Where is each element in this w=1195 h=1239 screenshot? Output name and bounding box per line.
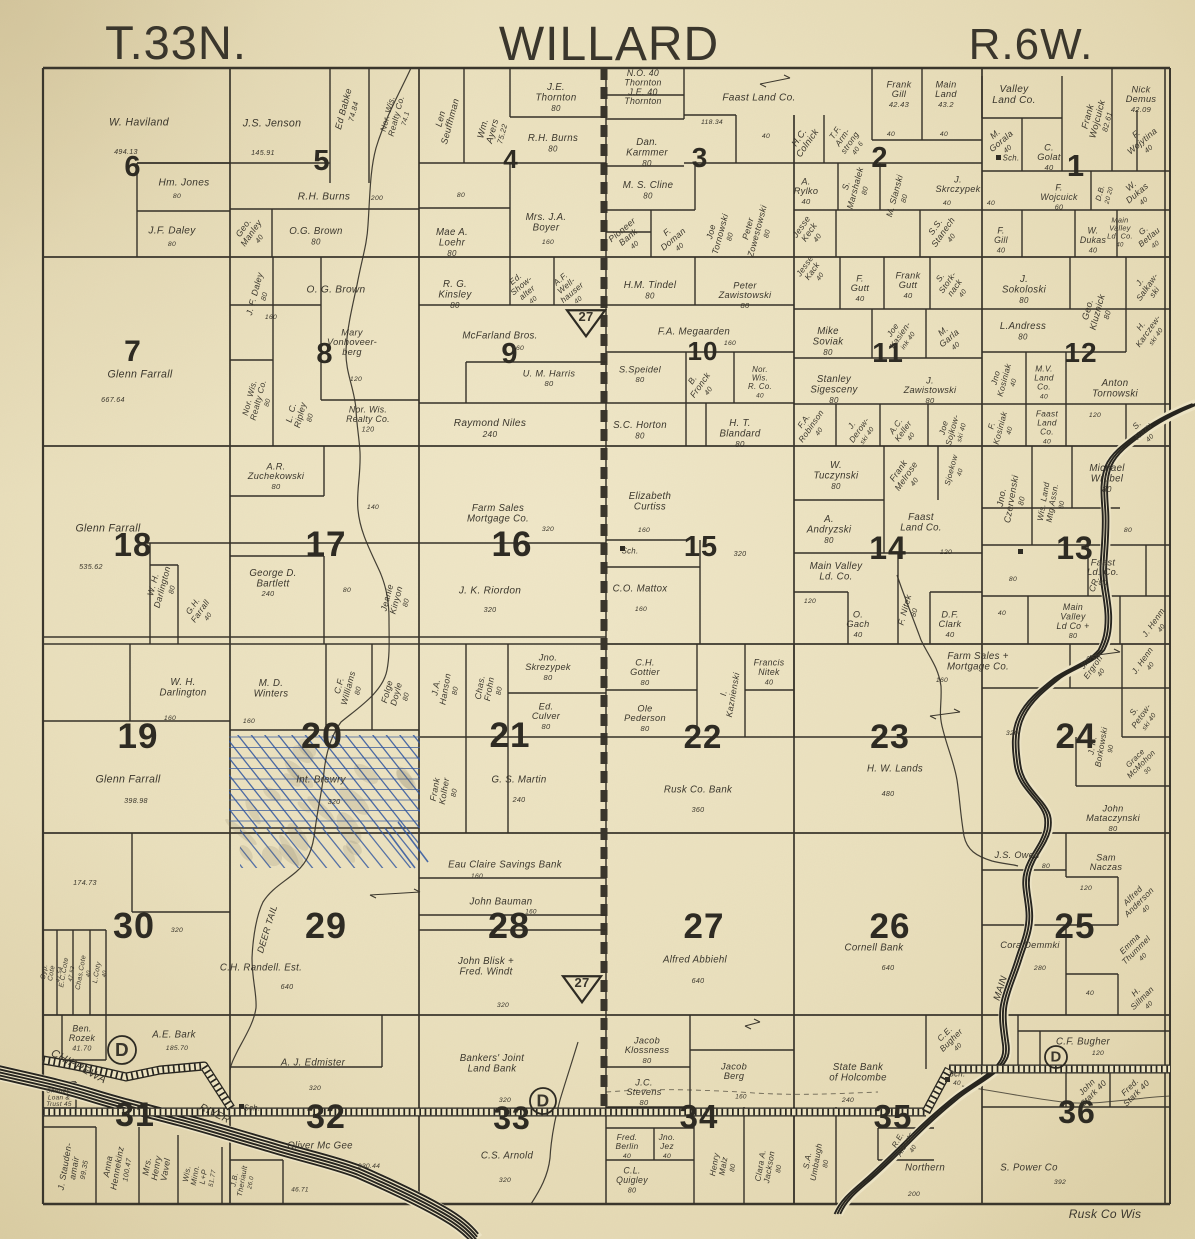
svg-text:Gill: Gill xyxy=(994,235,1009,245)
svg-text:Co.: Co. xyxy=(1037,382,1051,391)
svg-text:40: 40 xyxy=(997,246,1006,254)
svg-text:26: 26 xyxy=(870,907,911,946)
svg-text:Int. Brewry: Int. Brewry xyxy=(296,774,346,785)
svg-text:35: 35 xyxy=(874,1098,913,1135)
svg-text:360: 360 xyxy=(692,806,705,814)
svg-text:J.S. Jenson: J.S. Jenson xyxy=(242,118,302,130)
svg-text:29: 29 xyxy=(305,905,347,946)
svg-text:160: 160 xyxy=(164,715,176,722)
svg-text:80: 80 xyxy=(640,1098,649,1107)
svg-text:Mortgage Co.: Mortgage Co. xyxy=(947,662,1009,673)
svg-text:7: 7 xyxy=(124,335,142,368)
svg-text:80: 80 xyxy=(1102,485,1112,494)
svg-text:Rusk Co. Bank: Rusk Co. Bank xyxy=(664,784,733,795)
svg-text:Gutt: Gutt xyxy=(899,280,918,290)
svg-text:F.: F. xyxy=(856,273,864,283)
svg-text:Gill: Gill xyxy=(892,89,907,99)
svg-text:Jez: Jez xyxy=(659,1142,674,1151)
svg-text:80: 80 xyxy=(343,587,351,594)
svg-text:Wrubel: Wrubel xyxy=(1091,473,1124,484)
svg-text:80: 80 xyxy=(272,482,281,491)
svg-text:J.F. Daley: J.F. Daley xyxy=(147,226,196,237)
svg-text:Sch.: Sch. xyxy=(622,547,639,556)
svg-text:M.V.: M.V. xyxy=(1035,364,1053,373)
svg-text:160: 160 xyxy=(512,345,524,352)
svg-text:Faast: Faast xyxy=(908,512,935,523)
svg-text:Rusk Co Wis: Rusk Co Wis xyxy=(1069,1207,1142,1221)
svg-text:80: 80 xyxy=(823,348,833,357)
svg-text:40: 40 xyxy=(1043,438,1051,445)
svg-text:Karmmer: Karmmer xyxy=(626,147,668,158)
svg-text:Cornell Bank: Cornell Bank xyxy=(845,942,905,953)
svg-text:80: 80 xyxy=(822,1159,830,1168)
svg-text:160: 160 xyxy=(542,239,554,246)
svg-text:S.C. Horton: S.C. Horton xyxy=(613,420,667,431)
svg-text:of Holcombe: of Holcombe xyxy=(829,1073,887,1084)
svg-text:Vonhoveer-: Vonhoveer- xyxy=(327,337,377,347)
svg-text:Gach: Gach xyxy=(846,619,869,629)
svg-text:320: 320 xyxy=(1006,730,1018,737)
svg-text:D: D xyxy=(537,1090,550,1110)
svg-text:Frank: Frank xyxy=(887,79,912,89)
svg-text:Soviak: Soviak xyxy=(813,336,845,347)
svg-text:392: 392 xyxy=(1054,1179,1066,1186)
svg-text:80: 80 xyxy=(829,396,839,405)
svg-text:120: 120 xyxy=(1080,885,1092,892)
svg-text:R. G.: R. G. xyxy=(443,279,467,290)
svg-text:D: D xyxy=(1050,1050,1061,1066)
svg-text:80: 80 xyxy=(643,1056,652,1065)
svg-text:34: 34 xyxy=(680,1098,719,1135)
svg-text:Ed.: Ed. xyxy=(539,701,554,711)
svg-text:Rozek: Rozek xyxy=(69,1033,96,1043)
svg-text:Faast: Faast xyxy=(1036,409,1059,418)
svg-text:Darlington: Darlington xyxy=(159,688,206,699)
svg-text:80: 80 xyxy=(1018,333,1028,342)
svg-text:240: 240 xyxy=(841,1097,854,1104)
svg-text:Hm. Jones: Hm. Jones xyxy=(158,178,209,189)
svg-text:Mae A.: Mae A. xyxy=(436,227,468,238)
svg-text:46.71: 46.71 xyxy=(291,1187,309,1194)
svg-text:C.F. Bugher: C.F. Bugher xyxy=(1056,1036,1111,1047)
svg-text:16: 16 xyxy=(492,525,533,564)
svg-text:D.F.: D.F. xyxy=(941,609,958,619)
svg-text:Nick: Nick xyxy=(1131,84,1150,94)
svg-text:12: 12 xyxy=(1064,337,1097,368)
svg-text:F.A. Megaarden: F.A. Megaarden xyxy=(658,326,730,337)
svg-text:Mrs. J.A.: Mrs. J.A. xyxy=(526,212,567,223)
svg-text:M. D.: M. D. xyxy=(259,678,284,689)
svg-text:Pederson: Pederson xyxy=(624,713,666,723)
svg-text:Sheboy.: Sheboy. xyxy=(46,1087,71,1094)
svg-text:Frank: Frank xyxy=(896,270,921,280)
svg-text:J.: J. xyxy=(925,375,934,385)
svg-text:C.: C. xyxy=(1044,142,1054,152)
svg-text:80: 80 xyxy=(1109,824,1118,833)
svg-text:80: 80 xyxy=(1069,632,1078,640)
svg-text:27: 27 xyxy=(578,309,593,324)
svg-text:Faast Land Co.: Faast Land Co. xyxy=(722,93,795,104)
svg-text:80: 80 xyxy=(450,301,460,310)
svg-text:320: 320 xyxy=(499,1097,511,1104)
svg-text:80: 80 xyxy=(451,686,460,696)
svg-text:240: 240 xyxy=(512,796,526,804)
svg-text:40: 40 xyxy=(1045,163,1054,172)
svg-text:640: 640 xyxy=(281,983,294,991)
svg-text:42.09: 42.09 xyxy=(1131,105,1152,114)
svg-text:Farm Sales +: Farm Sales + xyxy=(947,651,1008,662)
svg-text:Mike: Mike xyxy=(817,326,839,337)
svg-text:Eau Claire Savings Bank: Eau Claire Savings Bank xyxy=(448,859,563,870)
svg-text:160: 160 xyxy=(638,527,650,534)
svg-text:240: 240 xyxy=(261,590,275,598)
svg-text:M. S. Cline: M. S. Cline xyxy=(623,180,674,191)
svg-text:40: 40 xyxy=(1086,990,1094,997)
svg-text:Berg: Berg xyxy=(724,1071,745,1081)
svg-text:A.E. Bark: A.E. Bark xyxy=(151,1029,196,1040)
svg-text:80: 80 xyxy=(635,432,645,441)
svg-text:Thornton: Thornton xyxy=(624,96,661,106)
svg-text:Skrczypek: Skrczypek xyxy=(935,184,980,194)
svg-text:Dan.: Dan. xyxy=(636,137,658,148)
svg-text:40: 40 xyxy=(940,131,948,138)
svg-text:Mortgage Co.: Mortgage Co. xyxy=(467,514,529,525)
svg-text:G. S. Martin: G. S. Martin xyxy=(491,774,546,785)
svg-text:Stanley: Stanley xyxy=(817,374,852,385)
svg-text:H. T.: H. T. xyxy=(729,418,751,429)
svg-text:Blandard: Blandard xyxy=(719,428,760,439)
svg-text:Land Bank: Land Bank xyxy=(468,1064,518,1075)
svg-text:H.M. Tindel: H.M. Tindel xyxy=(624,280,677,291)
svg-text:25: 25 xyxy=(1055,907,1096,946)
svg-text:S. Power Co: S. Power Co xyxy=(1000,1162,1058,1173)
svg-text:O. G. Brown: O. G. Brown xyxy=(307,285,366,296)
svg-text:320: 320 xyxy=(171,927,183,934)
svg-text:berg: berg xyxy=(342,347,362,357)
svg-text:Rylko: Rylko xyxy=(794,186,818,196)
svg-text:Ld. Co.: Ld. Co. xyxy=(1107,232,1133,241)
svg-text:80: 80 xyxy=(642,159,652,168)
svg-text:A. J. Edmister: A. J. Edmister xyxy=(280,1057,346,1068)
svg-text:23: 23 xyxy=(870,718,910,756)
svg-text:Bartlett: Bartlett xyxy=(257,579,291,590)
svg-text:27: 27 xyxy=(684,907,725,946)
svg-text:22: 22 xyxy=(684,718,723,755)
svg-text:200: 200 xyxy=(907,1191,920,1198)
svg-text:3: 3 xyxy=(692,142,709,173)
svg-text:Ole: Ole xyxy=(637,703,652,713)
svg-text:120: 120 xyxy=(804,598,816,605)
svg-text:320: 320 xyxy=(328,798,341,806)
svg-text:80: 80 xyxy=(495,686,504,696)
svg-text:J.E.: J.E. xyxy=(546,82,565,93)
svg-text:Glenn Farrall: Glenn Farrall xyxy=(75,523,140,535)
svg-text:Dukas: Dukas xyxy=(1080,235,1107,245)
svg-text:80: 80 xyxy=(542,722,551,731)
svg-text:185.70: 185.70 xyxy=(166,1045,189,1052)
svg-text:George D.: George D. xyxy=(249,568,296,579)
svg-text:160: 160 xyxy=(735,1094,747,1101)
svg-text:40: 40 xyxy=(1040,393,1048,400)
svg-text:Bankers' Joint: Bankers' Joint xyxy=(460,1053,526,1064)
svg-text:Gottier: Gottier xyxy=(630,667,660,677)
svg-text:480: 480 xyxy=(882,790,895,798)
svg-text:Glenn Farrall: Glenn Farrall xyxy=(95,774,160,786)
svg-text:80: 80 xyxy=(1058,500,1066,509)
svg-text:A.: A. xyxy=(800,176,810,186)
svg-text:Main: Main xyxy=(935,79,956,89)
svg-text:Alfred Abbiehl: Alfred Abbiehl xyxy=(662,954,728,965)
svg-text:160: 160 xyxy=(243,718,255,725)
svg-text:Andryzski: Andryzski xyxy=(806,524,852,535)
svg-text:80: 80 xyxy=(831,482,841,491)
svg-text:R.H. Burns: R.H. Burns xyxy=(298,192,350,203)
svg-text:A.R.: A.R. xyxy=(265,461,285,471)
svg-text:Klossness: Klossness xyxy=(625,1045,670,1055)
svg-text:Land Co.: Land Co. xyxy=(900,523,942,534)
svg-text:Peter: Peter xyxy=(733,280,757,290)
svg-text:120: 120 xyxy=(1092,1050,1104,1057)
svg-text:200: 200 xyxy=(370,195,383,202)
svg-text:C.H.: C.H. xyxy=(635,657,655,667)
svg-text:40: 40 xyxy=(998,610,1006,617)
svg-text:Golat: Golat xyxy=(1037,152,1061,162)
svg-text:40: 40 xyxy=(953,1080,961,1087)
svg-text:Ld. Co.: Ld. Co. xyxy=(819,572,852,583)
svg-text:80: 80 xyxy=(1124,527,1132,534)
svg-text:80: 80 xyxy=(1009,576,1017,583)
svg-text:Elizabeth: Elizabeth xyxy=(629,491,671,502)
svg-text:1: 1 xyxy=(1067,148,1085,183)
svg-text:Sch.: Sch. xyxy=(949,1070,966,1079)
svg-text:C.H. Randell. Est.: C.H. Randell. Est. xyxy=(220,962,302,973)
svg-text:Land: Land xyxy=(935,89,957,99)
svg-text:C.O. Mattox: C.O. Mattox xyxy=(613,583,669,594)
svg-text:667.64: 667.64 xyxy=(101,396,125,404)
svg-text:Jno.: Jno. xyxy=(538,652,558,662)
svg-text:S.Speidel: S.Speidel xyxy=(619,364,662,374)
svg-text:State Bank: State Bank xyxy=(833,1062,884,1073)
svg-text:Nitek: Nitek xyxy=(758,667,780,677)
svg-text:Berlin: Berlin xyxy=(616,1142,639,1151)
svg-text:40: 40 xyxy=(1116,242,1124,248)
svg-text:320: 320 xyxy=(497,1002,509,1009)
svg-text:40: 40 xyxy=(854,630,863,639)
svg-text:2: 2 xyxy=(871,142,888,174)
svg-text:D: D xyxy=(115,1040,129,1061)
svg-text:Realty Co.: Realty Co. xyxy=(346,414,390,424)
svg-text:120: 120 xyxy=(362,425,375,433)
svg-text:Sch.: Sch. xyxy=(1003,154,1020,163)
svg-text:640: 640 xyxy=(692,977,705,985)
svg-text:Skrezypek: Skrezypek xyxy=(525,662,571,672)
svg-text:Main Valley: Main Valley xyxy=(810,561,864,572)
svg-text:15: 15 xyxy=(684,531,718,563)
svg-text:Wojcuick: Wojcuick xyxy=(1040,192,1078,202)
svg-text:80: 80 xyxy=(457,192,465,199)
svg-text:240: 240 xyxy=(482,429,498,439)
svg-text:W. Haviland: W. Haviland xyxy=(109,117,170,129)
svg-text:Valley: Valley xyxy=(1000,84,1030,95)
svg-text:80: 80 xyxy=(645,292,655,301)
svg-text:Cora Demmki: Cora Demmki xyxy=(1000,940,1060,950)
svg-text:90: 90 xyxy=(1107,744,1115,753)
svg-text:W.: W. xyxy=(830,460,842,471)
svg-text:Jno.: Jno. xyxy=(658,1133,676,1142)
svg-text:160: 160 xyxy=(635,606,647,613)
svg-text:H. W. Lands: H. W. Lands xyxy=(867,763,923,774)
svg-text:42.43: 42.43 xyxy=(889,100,910,109)
svg-text:120: 120 xyxy=(1089,412,1101,419)
svg-text:Sam: Sam xyxy=(1096,852,1116,862)
svg-text:40: 40 xyxy=(904,291,913,300)
svg-text:Quigley: Quigley xyxy=(616,1175,648,1185)
svg-text:Kinsley: Kinsley xyxy=(438,289,472,300)
svg-text:320: 320 xyxy=(499,1177,511,1184)
svg-text:Tornowski: Tornowski xyxy=(1092,389,1138,400)
svg-text:80: 80 xyxy=(824,536,834,545)
svg-text:120: 120 xyxy=(350,376,362,383)
svg-text:60: 60 xyxy=(1055,203,1064,211)
svg-text:Land: Land xyxy=(1034,373,1054,382)
svg-text:80: 80 xyxy=(735,440,745,449)
svg-text:Farm Sales: Farm Sales xyxy=(472,503,524,514)
svg-text:Tuczynski: Tuczynski xyxy=(814,470,859,481)
svg-text:280: 280 xyxy=(1033,965,1046,972)
svg-text:80: 80 xyxy=(636,375,645,384)
svg-text:Land: Land xyxy=(1037,418,1057,427)
svg-text:40: 40 xyxy=(756,392,764,399)
svg-text:80: 80 xyxy=(628,1186,637,1194)
svg-text:80: 80 xyxy=(168,241,176,248)
svg-text:J.C.: J.C. xyxy=(634,1077,653,1087)
svg-text:160: 160 xyxy=(265,314,277,321)
svg-text:80: 80 xyxy=(545,379,554,388)
svg-text:40: 40 xyxy=(943,200,951,207)
svg-text:Ld Co +: Ld Co + xyxy=(1057,621,1090,631)
svg-text:A.: A. xyxy=(823,514,834,525)
svg-text:40: 40 xyxy=(623,1153,631,1160)
svg-text:40: 40 xyxy=(987,200,995,207)
svg-text:80: 80 xyxy=(741,301,750,310)
svg-text:O.: O. xyxy=(853,609,863,619)
svg-text:13: 13 xyxy=(1056,530,1094,566)
svg-text:Land Co.: Land Co. xyxy=(992,95,1035,106)
svg-text:J.: J. xyxy=(1019,274,1028,285)
svg-text:40: 40 xyxy=(802,197,811,206)
svg-text:Loehr: Loehr xyxy=(439,237,466,248)
svg-text:33: 33 xyxy=(493,1100,531,1136)
svg-text:Winters: Winters xyxy=(254,689,289,700)
svg-text:WILLARD: WILLARD xyxy=(499,18,719,71)
svg-text:80: 80 xyxy=(447,249,457,258)
svg-text:L.Andress: L.Andress xyxy=(1000,321,1046,332)
svg-text:40: 40 xyxy=(765,678,774,686)
svg-text:John Bauman: John Bauman xyxy=(469,896,533,907)
svg-text:Gutt: Gutt xyxy=(851,283,870,293)
svg-text:Northern: Northern xyxy=(905,1162,945,1173)
svg-text:80: 80 xyxy=(551,104,561,113)
svg-text:80: 80 xyxy=(450,788,459,798)
svg-text:31: 31 xyxy=(115,1096,155,1134)
svg-text:19: 19 xyxy=(118,717,159,756)
svg-text:80: 80 xyxy=(311,238,321,247)
svg-text:Zuchekowski: Zuchekowski xyxy=(247,471,305,481)
svg-text:R.6W.: R.6W. xyxy=(969,20,1094,69)
svg-text:Michael: Michael xyxy=(1089,463,1125,474)
svg-text:Mary: Mary xyxy=(341,327,364,337)
svg-text:80: 80 xyxy=(926,396,935,405)
svg-text:W. H.: W. H. xyxy=(170,677,195,688)
svg-text:140: 140 xyxy=(367,504,379,511)
svg-text:R.H. Burns: R.H. Burns xyxy=(528,133,578,144)
svg-text:30: 30 xyxy=(113,905,155,946)
svg-text:9: 9 xyxy=(501,338,518,370)
svg-text:80: 80 xyxy=(641,678,650,687)
svg-text:80: 80 xyxy=(641,724,650,733)
svg-text:10: 10 xyxy=(688,336,719,366)
svg-text:J.S. Owen: J.S. Owen xyxy=(993,850,1039,860)
svg-text:Trust 45: Trust 45 xyxy=(46,1101,72,1108)
svg-text:40: 40 xyxy=(856,294,865,303)
svg-text:40: 40 xyxy=(887,131,895,138)
svg-text:80: 80 xyxy=(548,145,558,154)
svg-text:160: 160 xyxy=(471,873,483,880)
svg-text:Curtiss: Curtiss xyxy=(634,502,666,513)
svg-text:Zawistowski: Zawistowski xyxy=(718,290,772,300)
svg-text:80: 80 xyxy=(1019,296,1029,305)
svg-text:Mataczynski: Mataczynski xyxy=(1086,813,1141,823)
svg-text:118.34: 118.34 xyxy=(701,119,723,126)
svg-text:John: John xyxy=(1101,803,1123,813)
svg-text:80: 80 xyxy=(729,1163,737,1172)
svg-text:80: 80 xyxy=(643,192,653,201)
svg-text:640: 640 xyxy=(882,964,895,972)
svg-text:Anton: Anton xyxy=(1101,378,1129,389)
svg-text:R. Co.: R. Co. xyxy=(748,382,772,391)
svg-text:20: 20 xyxy=(301,715,343,756)
svg-text:Naczas: Naczas xyxy=(1090,862,1123,872)
svg-text:Stevens: Stevens xyxy=(626,1087,661,1097)
svg-text:40: 40 xyxy=(946,630,955,639)
svg-text:14: 14 xyxy=(869,530,907,566)
svg-text:17: 17 xyxy=(306,525,347,564)
svg-text:Glenn Farrall: Glenn Farrall xyxy=(107,369,172,381)
svg-text:160: 160 xyxy=(525,909,537,916)
svg-text:32: 32 xyxy=(306,1098,346,1136)
svg-text:5: 5 xyxy=(313,145,330,177)
svg-text:Sch.: Sch. xyxy=(244,1104,261,1113)
svg-text:80: 80 xyxy=(173,193,181,200)
svg-text:145.91: 145.91 xyxy=(251,149,275,157)
svg-text:Clark: Clark xyxy=(939,619,962,629)
svg-text:160: 160 xyxy=(724,340,736,347)
svg-text:O.G. Brown: O.G. Brown xyxy=(289,226,342,237)
svg-text:120: 120 xyxy=(940,549,952,556)
svg-text:320: 320 xyxy=(734,550,747,558)
svg-text:Co.: Co. xyxy=(1040,427,1054,436)
svg-text:Oliver Mc Gee: Oliver Mc Gee xyxy=(287,1140,353,1151)
svg-text:320: 320 xyxy=(309,1085,321,1092)
svg-text:41.70: 41.70 xyxy=(72,1044,91,1052)
svg-text:Faast: Faast xyxy=(1091,557,1116,567)
svg-text:Culver: Culver xyxy=(532,711,561,721)
svg-text:494.13: 494.13 xyxy=(114,148,138,156)
svg-text:174.73: 174.73 xyxy=(73,879,97,887)
svg-text:Sigesceny: Sigesceny xyxy=(810,384,858,395)
svg-text:U. M. Harris: U. M. Harris xyxy=(523,368,576,378)
svg-text:40: 40 xyxy=(663,1153,671,1160)
